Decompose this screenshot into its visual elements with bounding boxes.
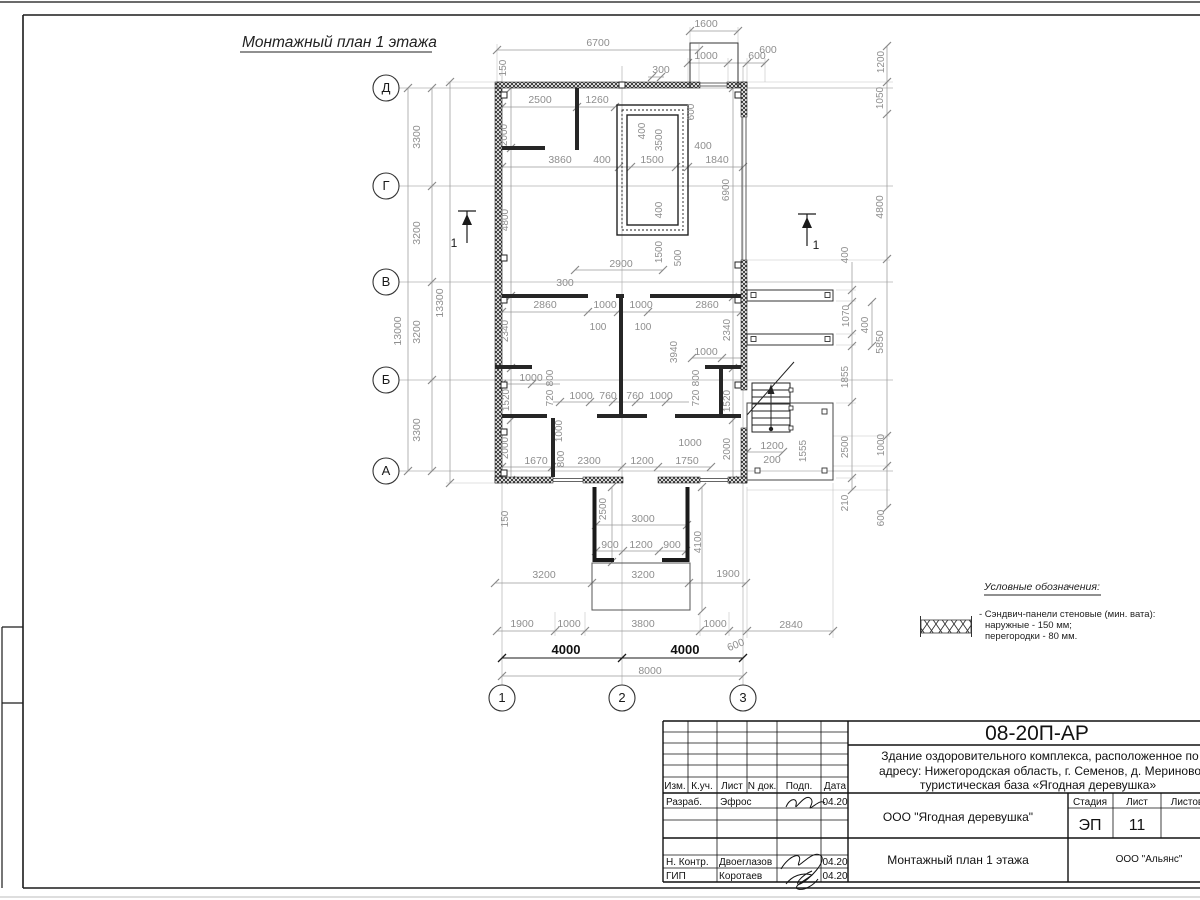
dim-label: 100 xyxy=(590,322,607,333)
dim-label: 800 xyxy=(556,450,567,467)
legend: Условные обозначения: - Сэндвич-панели с… xyxy=(921,581,1156,642)
dim-label: 600 xyxy=(686,103,697,120)
dim-label: 1000 xyxy=(629,299,653,311)
dim-label: 1555 xyxy=(798,439,809,462)
role-gip: ГИП xyxy=(666,871,686,882)
dim-label: 1600 xyxy=(694,18,718,30)
plan-title: Монтажный план 1 этажа xyxy=(242,34,437,51)
pool xyxy=(617,105,688,235)
drawing-sheet: Монтажный план 1 этажа Д Г В Б А 1 2 3 1… xyxy=(0,0,1200,900)
side-ramps xyxy=(747,290,833,345)
dim-label: 1200 xyxy=(630,455,654,467)
document-code: 08-20П-АР xyxy=(985,722,1089,745)
dim-label: 5850 xyxy=(874,330,886,354)
dim-label: 1000 xyxy=(593,299,617,311)
section-mark-left: 1 xyxy=(451,211,476,250)
dim-label: 1670 xyxy=(524,455,548,467)
dim-label: 8000 xyxy=(638,665,662,677)
dim-label: 2500 xyxy=(528,94,552,106)
dim-label: 2340 xyxy=(722,318,733,341)
dim-label: 3200 xyxy=(411,320,423,344)
dim-label: 3940 xyxy=(669,340,680,363)
dim-label: 3200 xyxy=(411,221,423,245)
dim-label: 400 xyxy=(694,140,712,152)
frame-margin-boxes xyxy=(2,627,23,888)
dim-label: 1200 xyxy=(629,539,653,551)
dim-label: 400 xyxy=(593,154,611,166)
dim-label: 2860 xyxy=(695,299,719,311)
axis-col-3: 3 xyxy=(739,690,746,705)
dim-label: 1840 xyxy=(705,154,729,166)
name-gip: Коротаев xyxy=(719,871,762,882)
axis-col-1: 1 xyxy=(498,690,505,705)
client-company: ООО "Ягодная деревушка" xyxy=(883,810,1033,824)
dim-label: 900 xyxy=(663,539,681,551)
dimension-labels-middle: 2860 1000 1000 2860 100 100 2340 2340 39… xyxy=(500,299,733,467)
project-description-line1: Здание оздоровительного комплекса, распо… xyxy=(881,749,1199,763)
dim-label: 400 xyxy=(860,316,871,333)
dim-label: 300 xyxy=(652,64,670,76)
dim-label: 13300 xyxy=(434,288,446,317)
sheets-label: Листов xyxy=(1171,797,1200,808)
dimension-labels-left: 3300 3200 3200 3300 13000 13300 xyxy=(392,125,446,442)
dim-label: 400 xyxy=(637,122,648,139)
dim-label: 720 xyxy=(545,389,556,406)
signature-marks xyxy=(781,797,825,889)
col-header-kuch: К.уч. xyxy=(691,781,713,792)
dim-label: 4100 xyxy=(693,530,704,553)
dim-label: 3000 xyxy=(631,513,655,525)
role-nkontr: Н. Контр. xyxy=(666,857,709,868)
dim-label: 3200 xyxy=(631,569,655,581)
sheet-label: Лист xyxy=(1126,797,1148,808)
dim-label: 2860 xyxy=(533,299,557,311)
dim-label: 2500 xyxy=(840,435,851,458)
dim-label: 6700 xyxy=(586,37,610,49)
dim-label: 4800 xyxy=(874,195,886,219)
sheet-number: 11 xyxy=(1129,817,1146,834)
dim-label: 1000 xyxy=(703,618,727,630)
dim-label: 2000 xyxy=(500,436,511,459)
dim-label: 1200 xyxy=(876,50,887,73)
axis-col-2: 2 xyxy=(618,690,625,705)
dim-label: 500 xyxy=(673,249,684,266)
dim-label: 150 xyxy=(500,510,511,527)
legend-item-line3: перегородки - 80 мм. xyxy=(985,631,1077,642)
title-block: Изм. К.уч. Лист N док. Подп. Дата Разраб… xyxy=(663,721,1200,889)
date-gip: 04.20 xyxy=(822,871,847,882)
dim-label: 1000 xyxy=(557,618,581,630)
dim-label: 1000 xyxy=(554,419,565,442)
col-header-podp: Подп. xyxy=(786,781,813,792)
dim-label: 2900 xyxy=(609,258,633,270)
dim-label: 2000 xyxy=(499,123,510,146)
dim-label: 4800 xyxy=(500,208,511,231)
dim-label: 400 xyxy=(654,201,665,218)
dim-label: 3800 xyxy=(631,618,655,630)
stage-value: ЭП xyxy=(1079,817,1102,834)
dimension-labels-bottom: 150 2500 3000 900 1200 900 4100 3200 320… xyxy=(500,497,803,677)
dim-label: 1000 xyxy=(649,390,673,402)
name-nkontr: Двоеглазов xyxy=(719,857,772,868)
dim-label: 1000 xyxy=(694,50,718,62)
dim-label: 800 xyxy=(545,369,556,386)
dim-label: 1000 xyxy=(876,433,887,456)
project-description-line2: адресу: Нижегородская область, г. Семено… xyxy=(879,764,1200,778)
dim-label: 1000 xyxy=(678,437,702,449)
dim-label: 1520 xyxy=(501,388,512,411)
dim-label: 13000 xyxy=(392,316,404,345)
dim-label: 1070 xyxy=(841,304,852,327)
dim-label: 1260 xyxy=(585,94,609,106)
date-nkontr: 04.20 xyxy=(822,857,847,868)
dimension-labels-top: 1600 6700 1000 600 300 150 2500 1260 200… xyxy=(498,18,766,289)
dim-label: 800 xyxy=(691,369,702,386)
dim-label: 900 xyxy=(601,539,619,551)
dim-label: 200 xyxy=(763,454,781,466)
exterior-stairs xyxy=(747,362,794,432)
dim-label: 3860 xyxy=(548,154,572,166)
dim-label: 2500 xyxy=(598,497,609,520)
dim-label: 1855 xyxy=(840,365,851,388)
col-header-list: Лист xyxy=(721,781,743,792)
axis-row-d: Д xyxy=(382,80,391,95)
dim-label: 600 xyxy=(876,509,887,526)
dim-label: 720 xyxy=(691,389,702,406)
dim-label: 1200 xyxy=(760,440,784,452)
signature-razrab xyxy=(786,797,825,808)
dim-label: 3300 xyxy=(411,125,423,149)
axis-row-b: Б xyxy=(382,372,391,387)
date-razrab: 04.20 xyxy=(822,797,847,808)
name-razrab: Эфрос xyxy=(720,796,752,808)
contractor-company: ООО "Альянс" xyxy=(1116,854,1183,865)
axis-row-v: В xyxy=(382,274,391,289)
dim-label: 6900 xyxy=(721,178,732,201)
dim-label-bold: 4000 xyxy=(671,642,700,657)
legend-item-line1: - Сэндвич-панели стеновые (мин. вата): xyxy=(979,609,1155,620)
project-description-line3: туристическая база «Ягодная деревушка» xyxy=(920,778,1157,792)
col-header-ndok: N док. xyxy=(748,781,777,792)
axis-row-g: Г xyxy=(382,178,389,193)
dim-label: 1050 xyxy=(875,86,886,109)
dim-label: 1900 xyxy=(510,618,534,630)
dim-label: 2840 xyxy=(779,619,803,631)
dim-label: 1500 xyxy=(654,240,665,263)
dim-label: 1520 xyxy=(722,389,733,412)
dim-label: 400 xyxy=(840,246,851,263)
legend-title: Условные обозначения: xyxy=(983,581,1100,593)
dim-label: 3500 xyxy=(654,128,665,151)
dim-label-bold: 4000 xyxy=(552,642,581,657)
dim-label: 2300 xyxy=(577,455,601,467)
dim-label: 100 xyxy=(635,322,652,333)
dim-label: 2000 xyxy=(722,437,733,460)
dim-label: 1000 xyxy=(569,390,593,402)
col-header-data: Дата xyxy=(824,781,847,792)
dim-label: 150 xyxy=(498,59,509,76)
dim-label: 760 xyxy=(599,390,617,402)
drawing-title: Монтажный план 1 этажа xyxy=(887,853,1029,867)
dim-label: 1750 xyxy=(675,455,699,467)
section-mark-right: 1 xyxy=(798,214,820,252)
signature-nkontr xyxy=(781,854,822,884)
section-label: 1 xyxy=(451,236,458,250)
dim-label: 210 xyxy=(840,494,851,511)
dim-label: 1000 xyxy=(694,346,718,358)
dim-label: 1000 xyxy=(519,372,543,384)
dimension-labels-right: 600 1200 1050 4800 400 1070 400 5850 185… xyxy=(759,44,887,526)
dim-label: 3200 xyxy=(532,569,556,581)
col-header-izm: Изм. xyxy=(664,781,685,792)
axis-row-a: А xyxy=(382,463,391,478)
dim-label: 2340 xyxy=(500,319,511,342)
legend-hatch-sample xyxy=(921,616,972,637)
dim-label: 3300 xyxy=(411,418,423,442)
legend-item-line2: наружные - 150 мм; xyxy=(985,620,1072,631)
section-label: 1 xyxy=(813,238,820,252)
dim-label: 600 xyxy=(759,44,777,56)
dim-label: 300 xyxy=(556,277,574,289)
stage-label: Стадия xyxy=(1073,797,1107,808)
role-razrab: Разраб. xyxy=(666,796,702,808)
dim-label: 1900 xyxy=(716,568,740,580)
dim-label: 760 xyxy=(626,390,644,402)
dim-label: 1500 xyxy=(640,154,664,166)
